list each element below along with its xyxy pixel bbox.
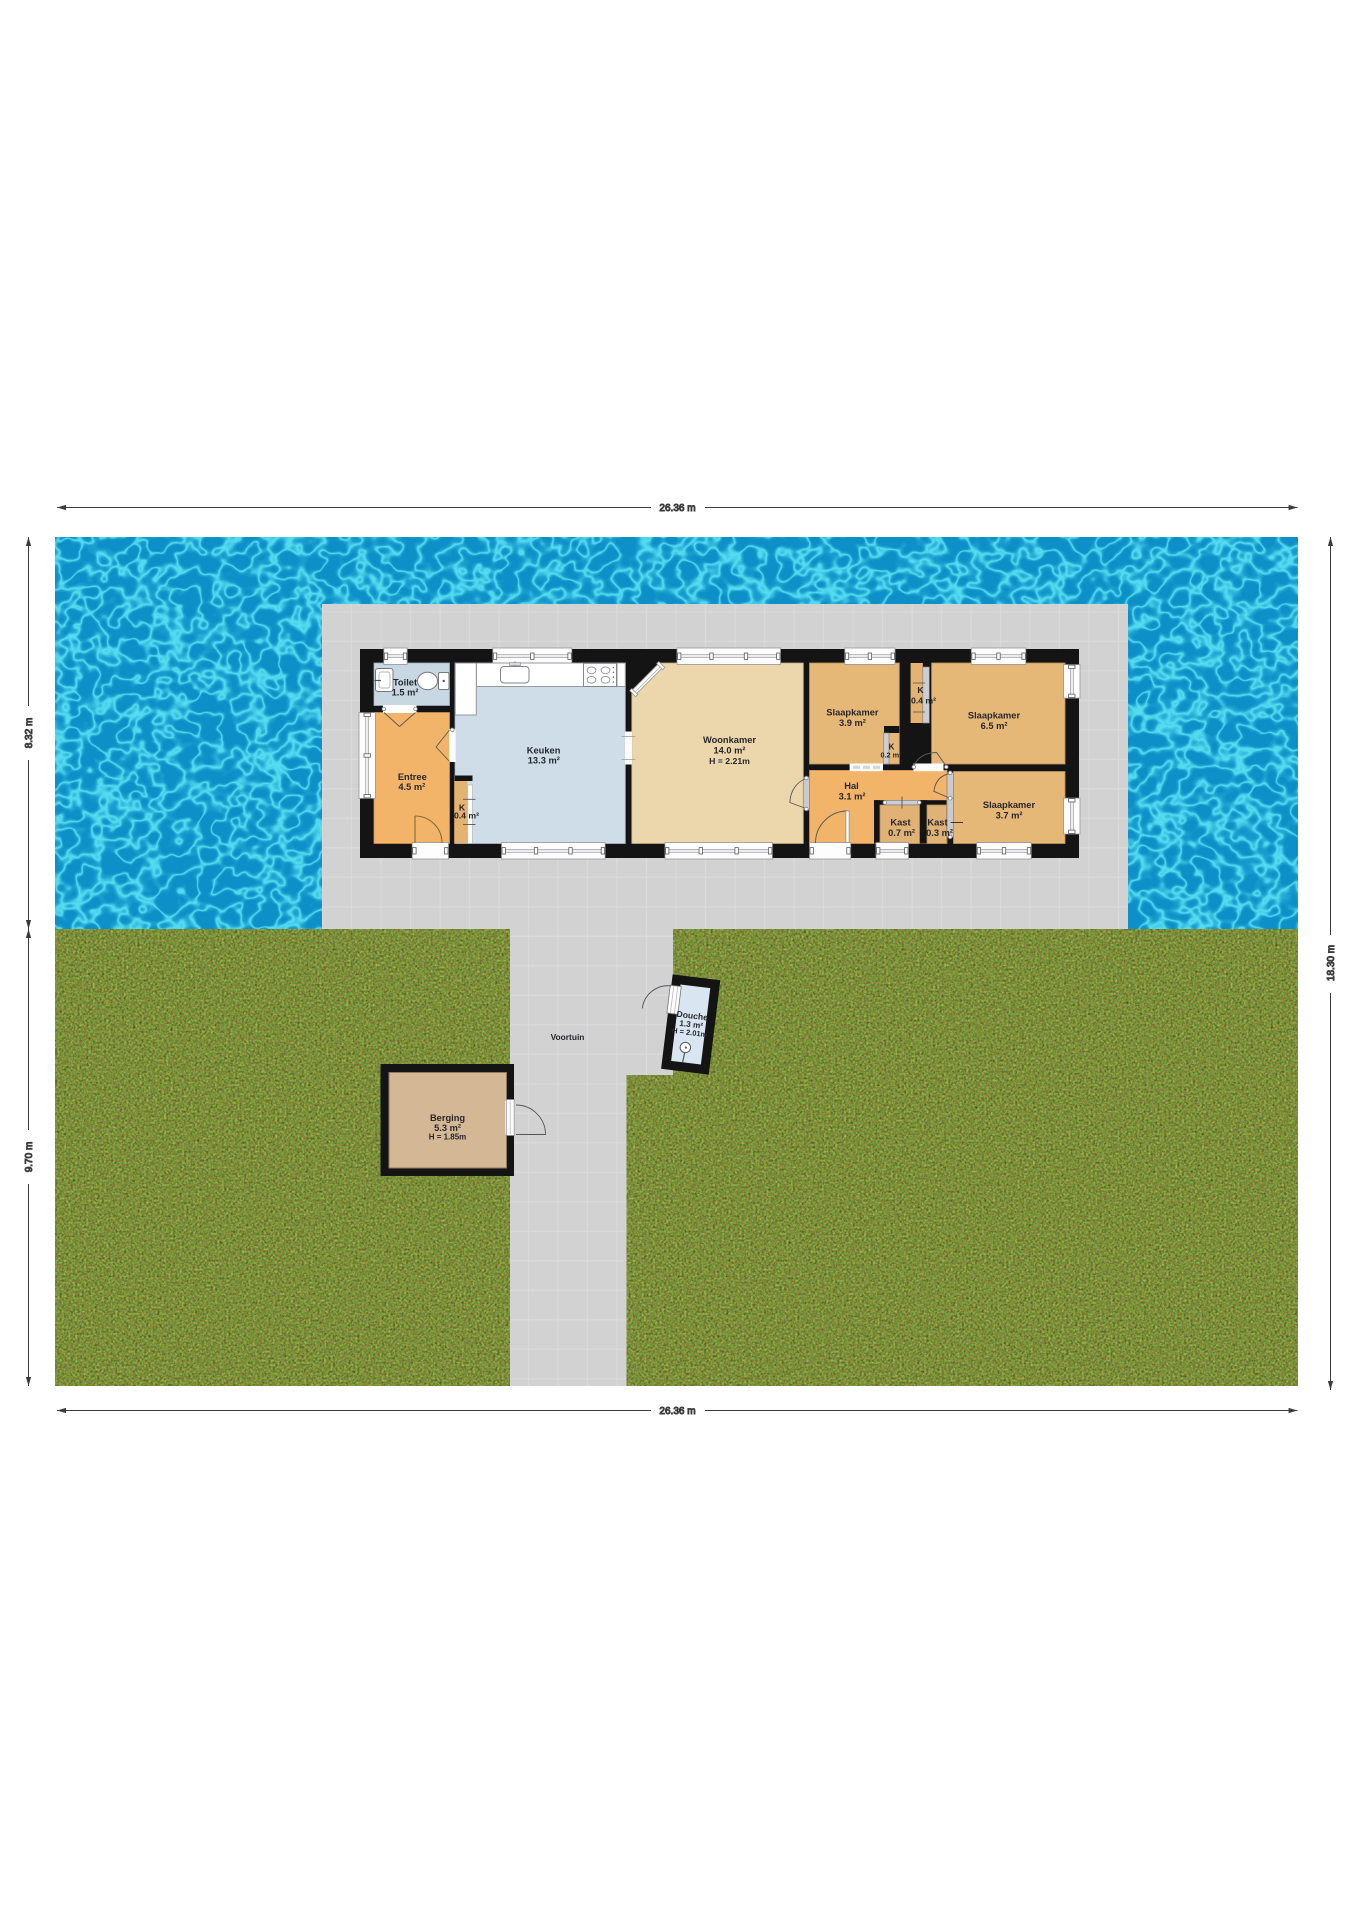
svg-text:0.7 m²: 0.7 m² bbox=[888, 828, 915, 838]
svg-text:6.5 m²: 6.5 m² bbox=[981, 721, 1008, 731]
svg-text:26.36 m: 26.36 m bbox=[659, 503, 695, 514]
svg-text:Entree: Entree bbox=[398, 772, 427, 782]
svg-text:5.3 m²: 5.3 m² bbox=[434, 1123, 461, 1133]
svg-text:0.2 m²: 0.2 m² bbox=[880, 751, 902, 760]
svg-text:Kast: Kast bbox=[927, 818, 947, 828]
svg-text:Voortuin: Voortuin bbox=[551, 1032, 585, 1042]
svg-text:H = 2.21m: H = 2.21m bbox=[709, 756, 750, 766]
svg-text:Slaapkamer: Slaapkamer bbox=[826, 708, 879, 718]
svg-text:3.7 m²: 3.7 m² bbox=[996, 811, 1023, 821]
svg-text:Toilet: Toilet bbox=[393, 678, 417, 688]
svg-text:14.0 m²: 14.0 m² bbox=[713, 745, 745, 755]
svg-text:9.70 m: 9.70 m bbox=[24, 1142, 35, 1173]
svg-text:8.32 m: 8.32 m bbox=[24, 718, 35, 749]
svg-text:Kast: Kast bbox=[890, 818, 910, 828]
svg-text:3.9 m²: 3.9 m² bbox=[839, 718, 866, 728]
svg-text:0.3 m²: 0.3 m² bbox=[926, 828, 953, 838]
svg-text:0.4 m²: 0.4 m² bbox=[911, 696, 936, 706]
svg-text:H = 1.85m: H = 1.85m bbox=[429, 1132, 467, 1141]
svg-text:26.36 m: 26.36 m bbox=[659, 1406, 695, 1417]
svg-text:18.30 m: 18.30 m bbox=[1326, 945, 1337, 981]
svg-text:Slaapkamer: Slaapkamer bbox=[968, 711, 1021, 721]
svg-text:Slaapkamer: Slaapkamer bbox=[983, 800, 1036, 810]
svg-text:0.4 m²: 0.4 m² bbox=[454, 811, 479, 821]
svg-text:Berging: Berging bbox=[430, 1113, 465, 1123]
svg-text:K: K bbox=[917, 685, 924, 695]
svg-text:Woonkamer: Woonkamer bbox=[703, 735, 756, 745]
svg-text:Hal: Hal bbox=[844, 781, 858, 791]
svg-text:1.5 m²: 1.5 m² bbox=[392, 687, 419, 697]
svg-text:13.3 m²: 13.3 m² bbox=[528, 756, 560, 766]
svg-text:Keuken: Keuken bbox=[527, 746, 561, 756]
svg-text:3.1 m²: 3.1 m² bbox=[839, 792, 866, 802]
svg-text:4.5 m²: 4.5 m² bbox=[398, 782, 425, 792]
